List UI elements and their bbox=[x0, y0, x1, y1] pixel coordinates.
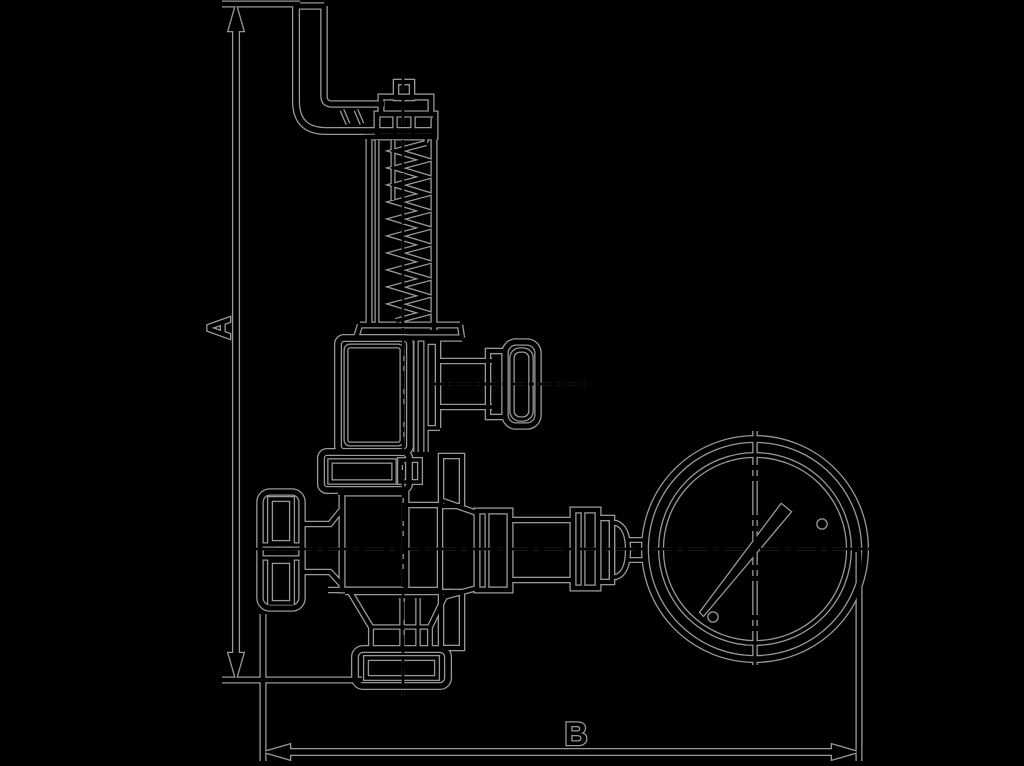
handwheel-inner-bottom bbox=[270, 561, 292, 603]
funnel-left-slant bbox=[350, 592, 371, 627]
dim-b-arrow-right-icon bbox=[832, 745, 858, 760]
upper-flange-inner bbox=[330, 461, 394, 482]
pipe-inner-edge bbox=[324, 6, 384, 104]
handwheel-inner-top bbox=[270, 499, 292, 543]
dim-a-arrow-down-icon bbox=[229, 653, 244, 679]
dimension-a-label: A bbox=[201, 316, 237, 339]
gauge-screw-lower-left bbox=[709, 613, 718, 622]
dimension-b-label: B bbox=[564, 716, 587, 752]
valve-mid-body bbox=[338, 338, 440, 452]
lower-body-outline bbox=[342, 493, 406, 590]
mid-body-inner bbox=[346, 346, 402, 444]
dim-b-arrow-left-icon bbox=[264, 745, 290, 760]
dim-a-arrow-up-icon bbox=[229, 5, 244, 31]
union-nut-1 bbox=[477, 511, 510, 590]
gauge-screw-upper-right bbox=[818, 520, 827, 529]
lower-body-right bbox=[406, 505, 440, 590]
valve-technical-drawing: A B bbox=[0, 0, 1024, 766]
mid-body-outline bbox=[338, 338, 410, 452]
drawing-canvas: A B bbox=[0, 0, 1024, 766]
bonnet-base-right bbox=[460, 325, 462, 338]
gauge-needle bbox=[700, 504, 790, 615]
